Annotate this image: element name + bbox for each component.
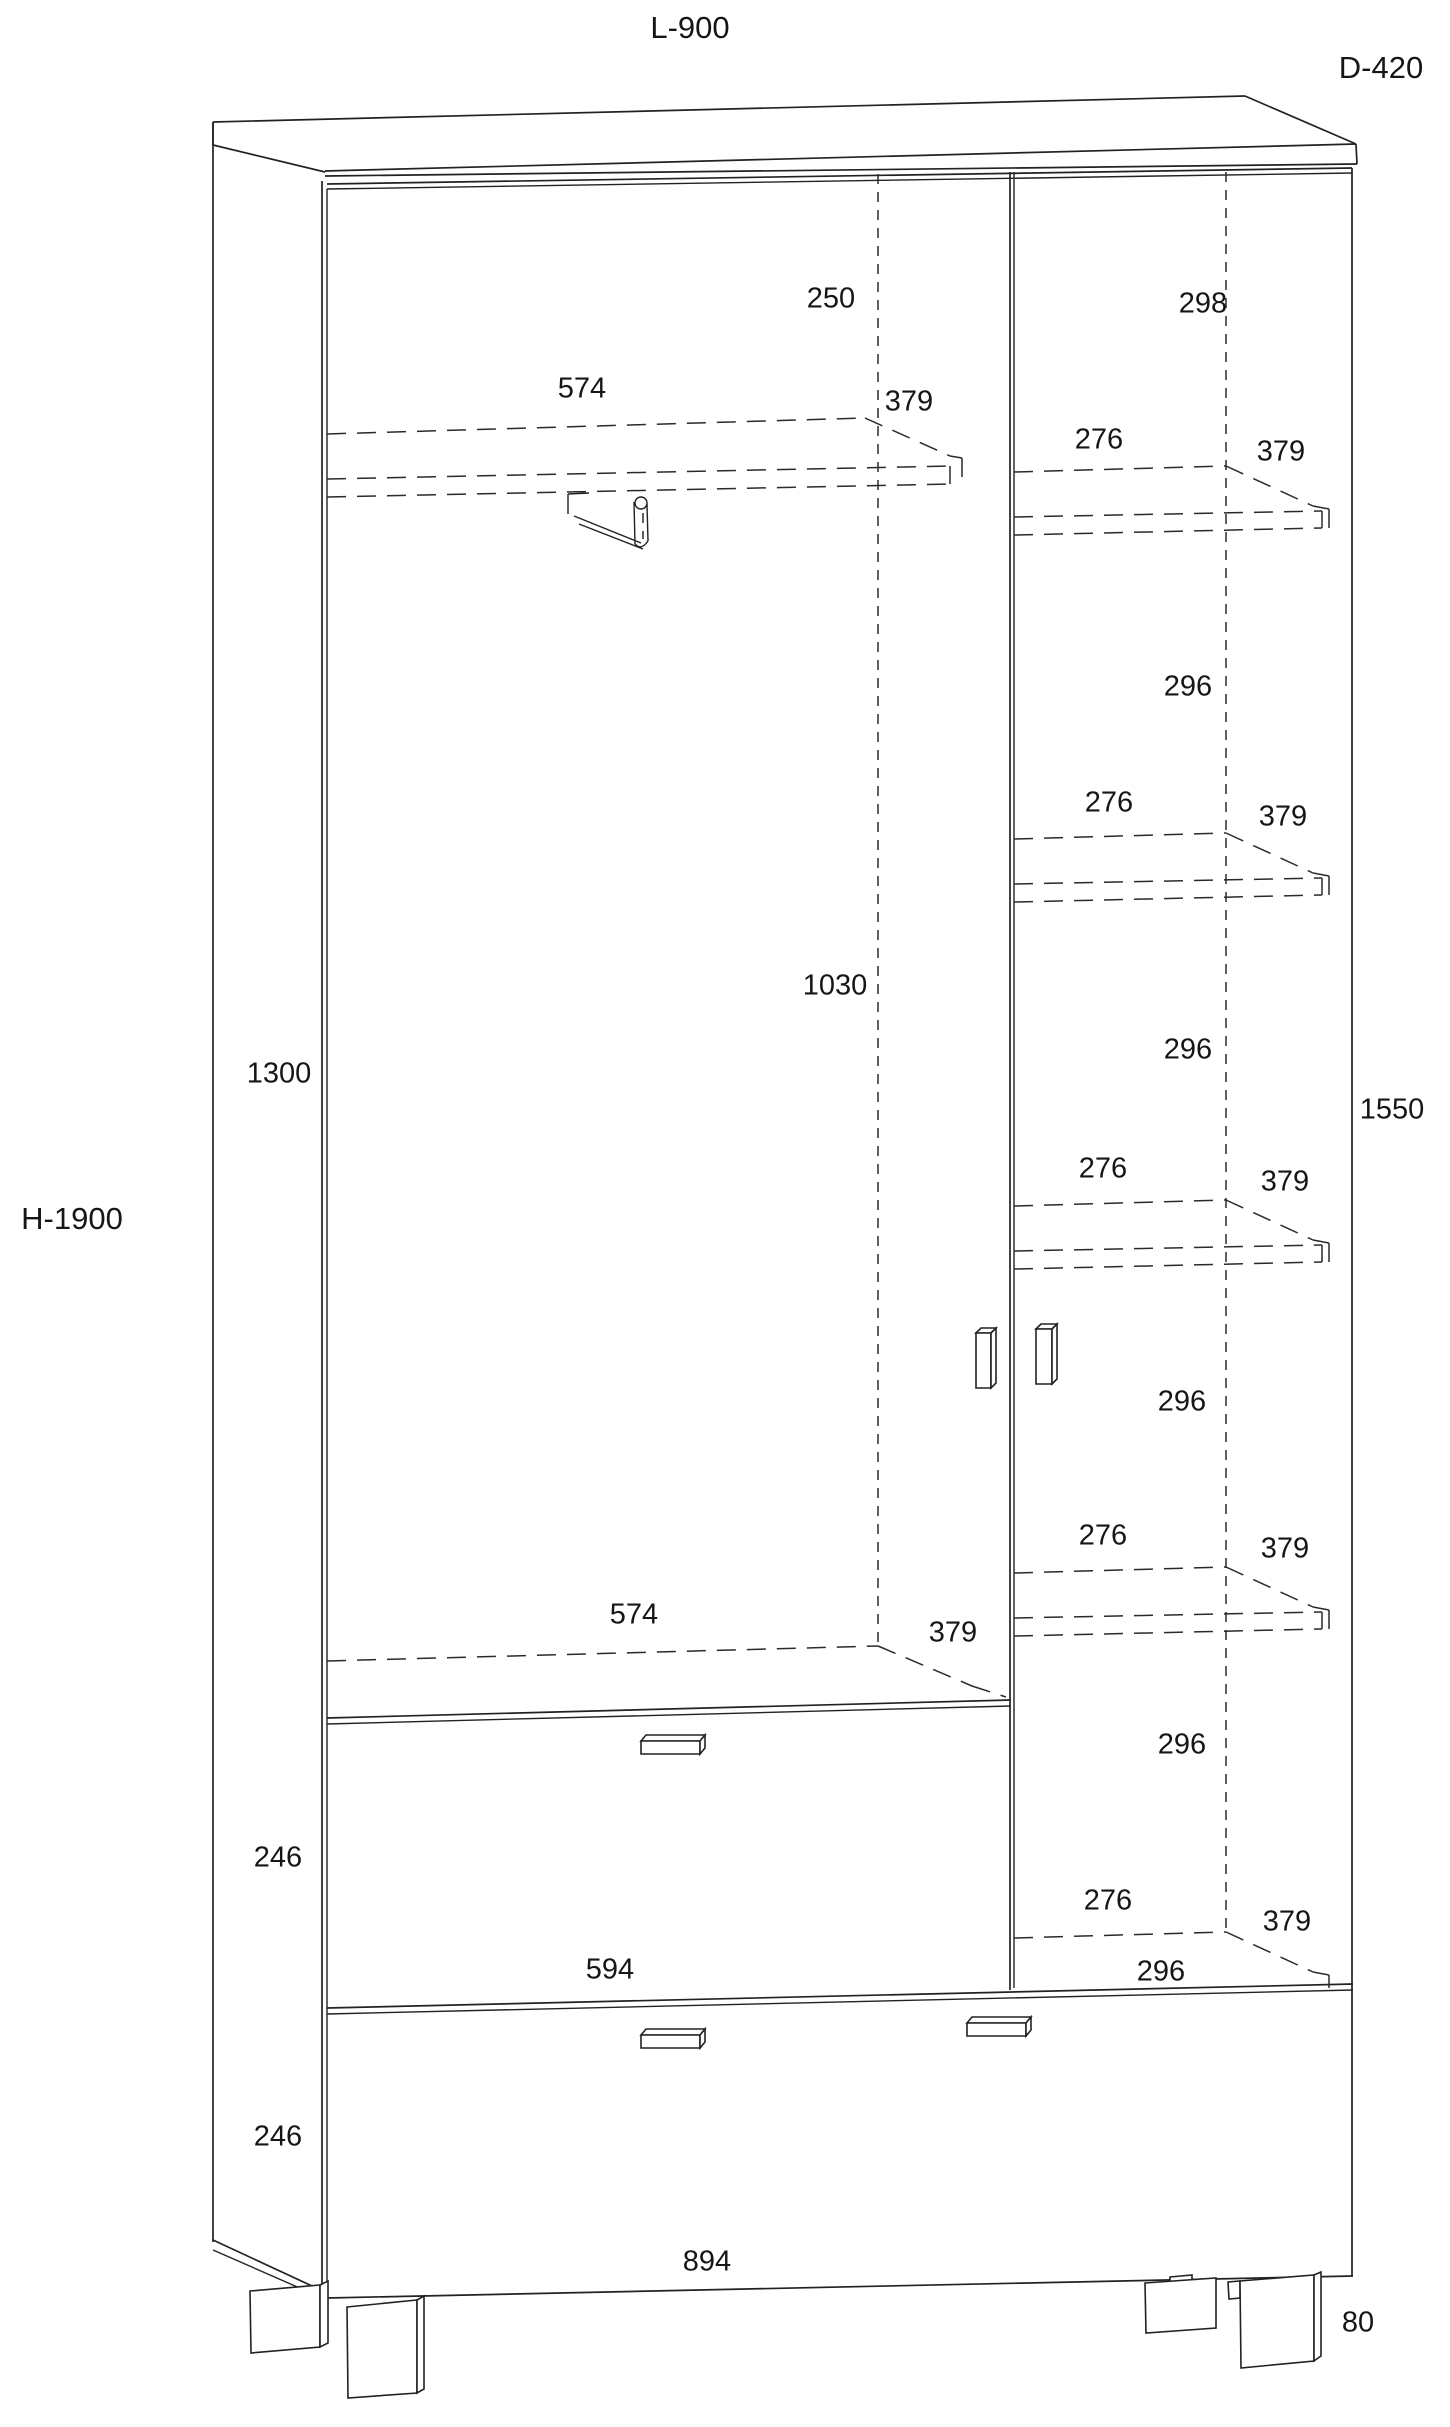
wardrobe-line-drawing — [0, 0, 1450, 2427]
dim-right-shelf3-depth: 379 — [1261, 1166, 1309, 1199]
dim-right-door-height: 1550 — [1360, 1094, 1425, 1127]
dim-right-shelf4-width: 276 — [1079, 1520, 1127, 1553]
dim-drawer2-width: 894 — [683, 2246, 731, 2279]
dim-left-shelf-top-width: 574 — [558, 373, 606, 406]
dim-right-gap4: 296 — [1158, 1729, 1206, 1762]
drawer-2-top-edge — [327, 1984, 1353, 2014]
hanging-rail-icon — [568, 493, 648, 549]
dim-right-gap2: 296 — [1164, 1034, 1212, 1067]
foot-front-left — [347, 2296, 424, 2398]
right-shelf-1 — [1014, 466, 1329, 535]
dim-feet-height: 80 — [1342, 2307, 1374, 2340]
dim-right-shelf1-depth: 379 — [1257, 436, 1305, 469]
dim-right-shelf5-width: 276 — [1084, 1885, 1132, 1918]
dim-overall-depth: D-420 — [1339, 50, 1423, 86]
dim-right-shelf1-width: 276 — [1075, 424, 1123, 457]
dim-right-top-gap: 298 — [1179, 288, 1227, 321]
dim-overall-height: H-1900 — [21, 1201, 123, 1237]
dim-left-shelf-top-depth: 379 — [885, 386, 933, 419]
right-shelf-3 — [1014, 1200, 1329, 1269]
wardrobe-dimension-diagram: L-900 D-420 H-1900 250 298 574 379 276 3… — [0, 0, 1450, 2427]
dim-left-top-gap: 250 — [807, 283, 855, 316]
dim-drawer2-height: 246 — [254, 2121, 302, 2154]
right-door-handle — [1036, 1324, 1057, 1384]
left-bottom-shelf — [327, 1646, 1006, 1697]
dim-right-shelf5-depth: 379 — [1263, 1906, 1311, 1939]
right-shelf-4 — [1014, 1567, 1329, 1636]
right-shelf-2 — [1014, 833, 1329, 902]
dim-drawer1-width: 594 — [586, 1954, 634, 1987]
dim-overall-width: L-900 — [650, 10, 729, 46]
dim-right-shelf2-depth: 379 — [1259, 801, 1307, 834]
dim-left-hanging-height: 1030 — [803, 970, 868, 1003]
dim-right-shelf2-width: 276 — [1085, 787, 1133, 820]
dim-right-gap1: 296 — [1164, 671, 1212, 704]
dim-drawer1-height: 246 — [254, 1842, 302, 1875]
foot-back-right — [1145, 2275, 1216, 2333]
foot-front-right — [1228, 2272, 1321, 2368]
center-divider — [1010, 172, 1014, 1990]
drawer-1-top-edge — [327, 1700, 1011, 1724]
dim-right-gap3: 296 — [1158, 1386, 1206, 1419]
dim-left-shelf-bottom-width: 574 — [610, 1599, 658, 1632]
drawer-2-handle-right — [967, 2017, 1031, 2036]
dim-right-shelf3-width: 276 — [1079, 1153, 1127, 1186]
drawer-2-handle-left — [641, 2029, 705, 2048]
drawer-1-handle — [641, 1735, 705, 1754]
dim-right-shelf4-depth: 379 — [1261, 1533, 1309, 1566]
dim-left-shelf-bottom-depth: 379 — [929, 1617, 977, 1650]
left-top-shelf — [327, 418, 962, 497]
left-door-handle — [976, 1328, 996, 1388]
top-panel — [213, 96, 1357, 176]
dim-left-door-height: 1300 — [247, 1058, 312, 1091]
foot-back-left — [250, 2281, 328, 2353]
dim-right-bottom-width: 296 — [1137, 1956, 1185, 1989]
